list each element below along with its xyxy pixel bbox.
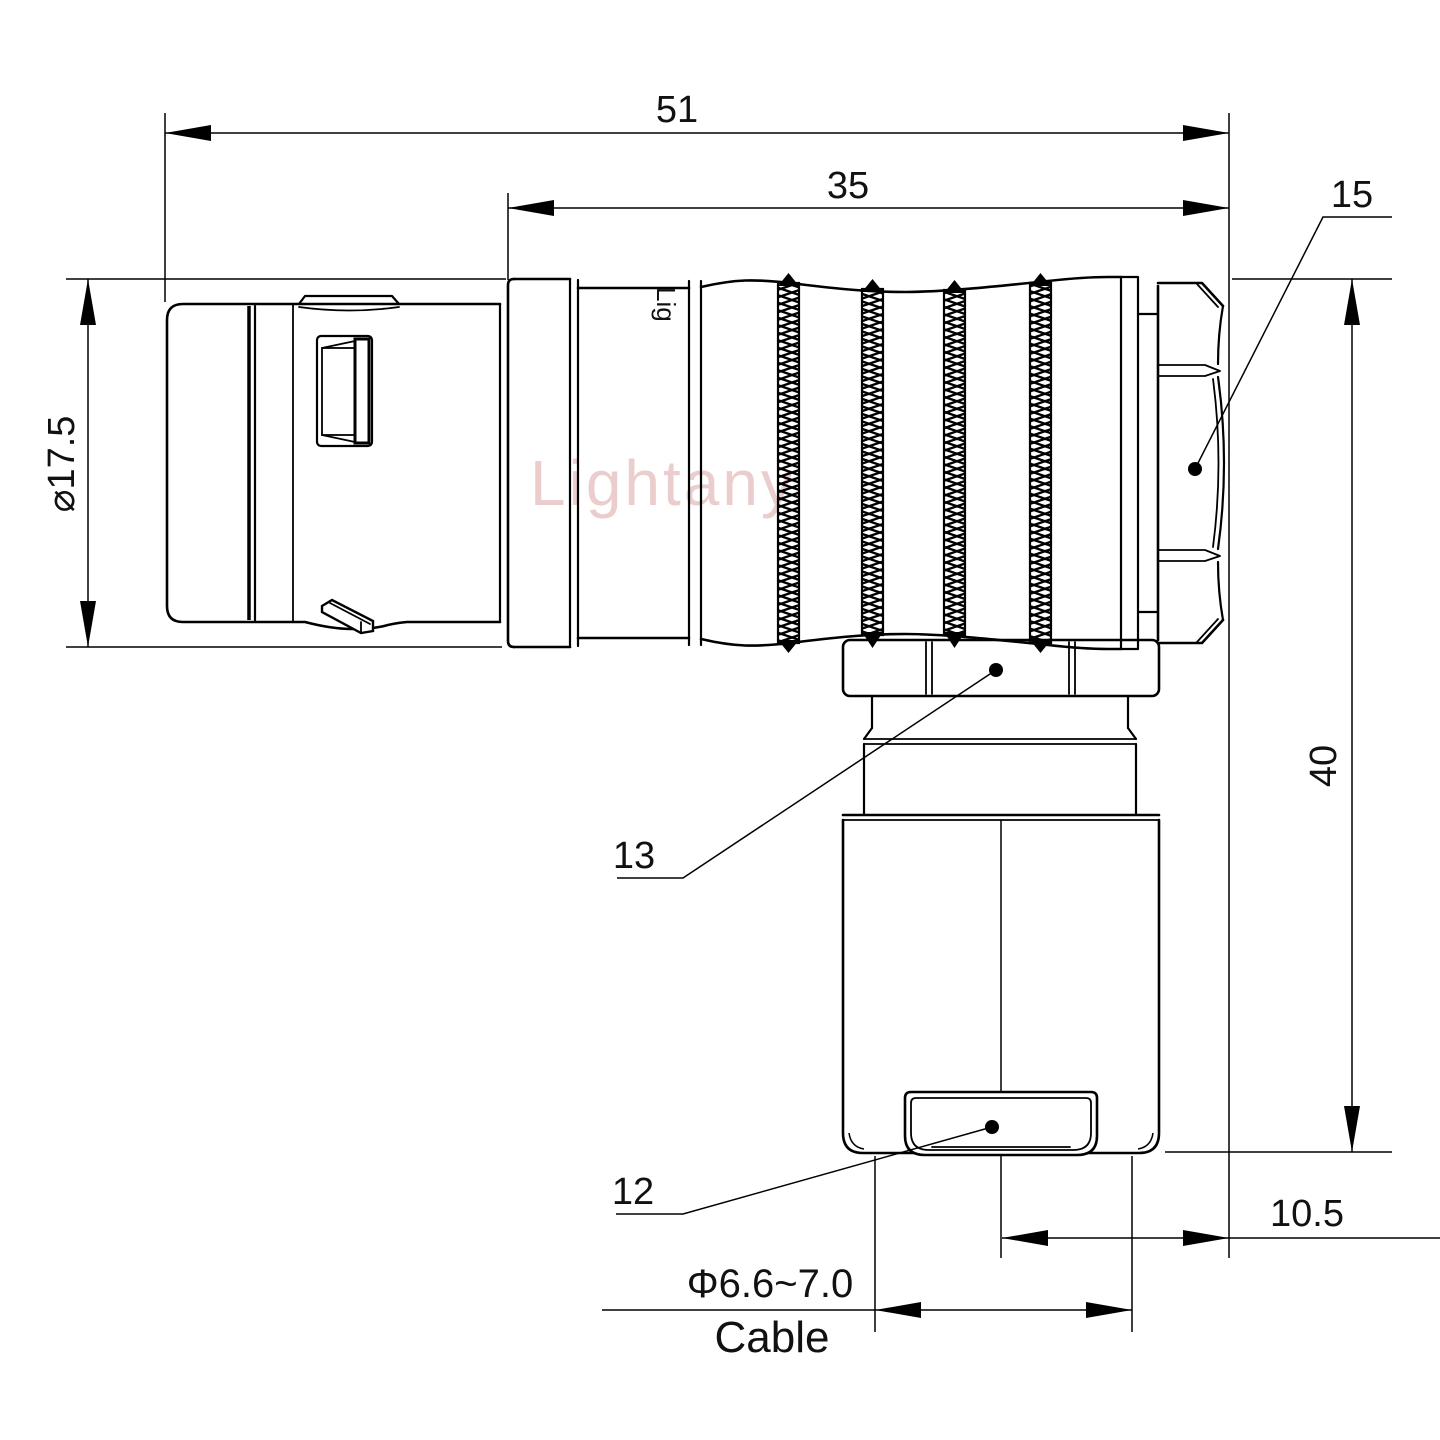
- knurl-band: [1030, 273, 1051, 653]
- knurl-band: [944, 280, 965, 648]
- dim-shell-diameter-label: ⌀17.5: [41, 416, 83, 513]
- leader-dot-13: [989, 663, 1003, 677]
- dim-axis-to-rear-label: 10.5: [1270, 1193, 1344, 1235]
- dim-cable-word-label: Cable: [715, 1313, 830, 1362]
- technical-drawing-page: Lightany: [0, 0, 1440, 1440]
- dim-overall-length-label: 51: [656, 89, 698, 131]
- callout-15-label: 15: [1331, 174, 1373, 216]
- part-marking-text: Lig: [651, 287, 681, 322]
- leader-dot-15: [1188, 462, 1202, 476]
- callout-13-label: 13: [613, 835, 655, 877]
- technical-drawing-canvas: Lightany: [0, 0, 1440, 1440]
- knurl-band: [778, 273, 799, 653]
- callout-12-label: 12: [612, 1171, 654, 1213]
- dim-cable-diameter-label: Φ6.6~7.0: [687, 1262, 853, 1306]
- drawing-background: [0, 0, 1440, 1440]
- dim-height-label: 40: [1303, 745, 1345, 787]
- dim-rear-length-label: 35: [827, 165, 869, 207]
- cord-grip-cap: [905, 1092, 1097, 1155]
- leader-dot-12: [985, 1120, 999, 1134]
- knurl-band: [862, 279, 883, 648]
